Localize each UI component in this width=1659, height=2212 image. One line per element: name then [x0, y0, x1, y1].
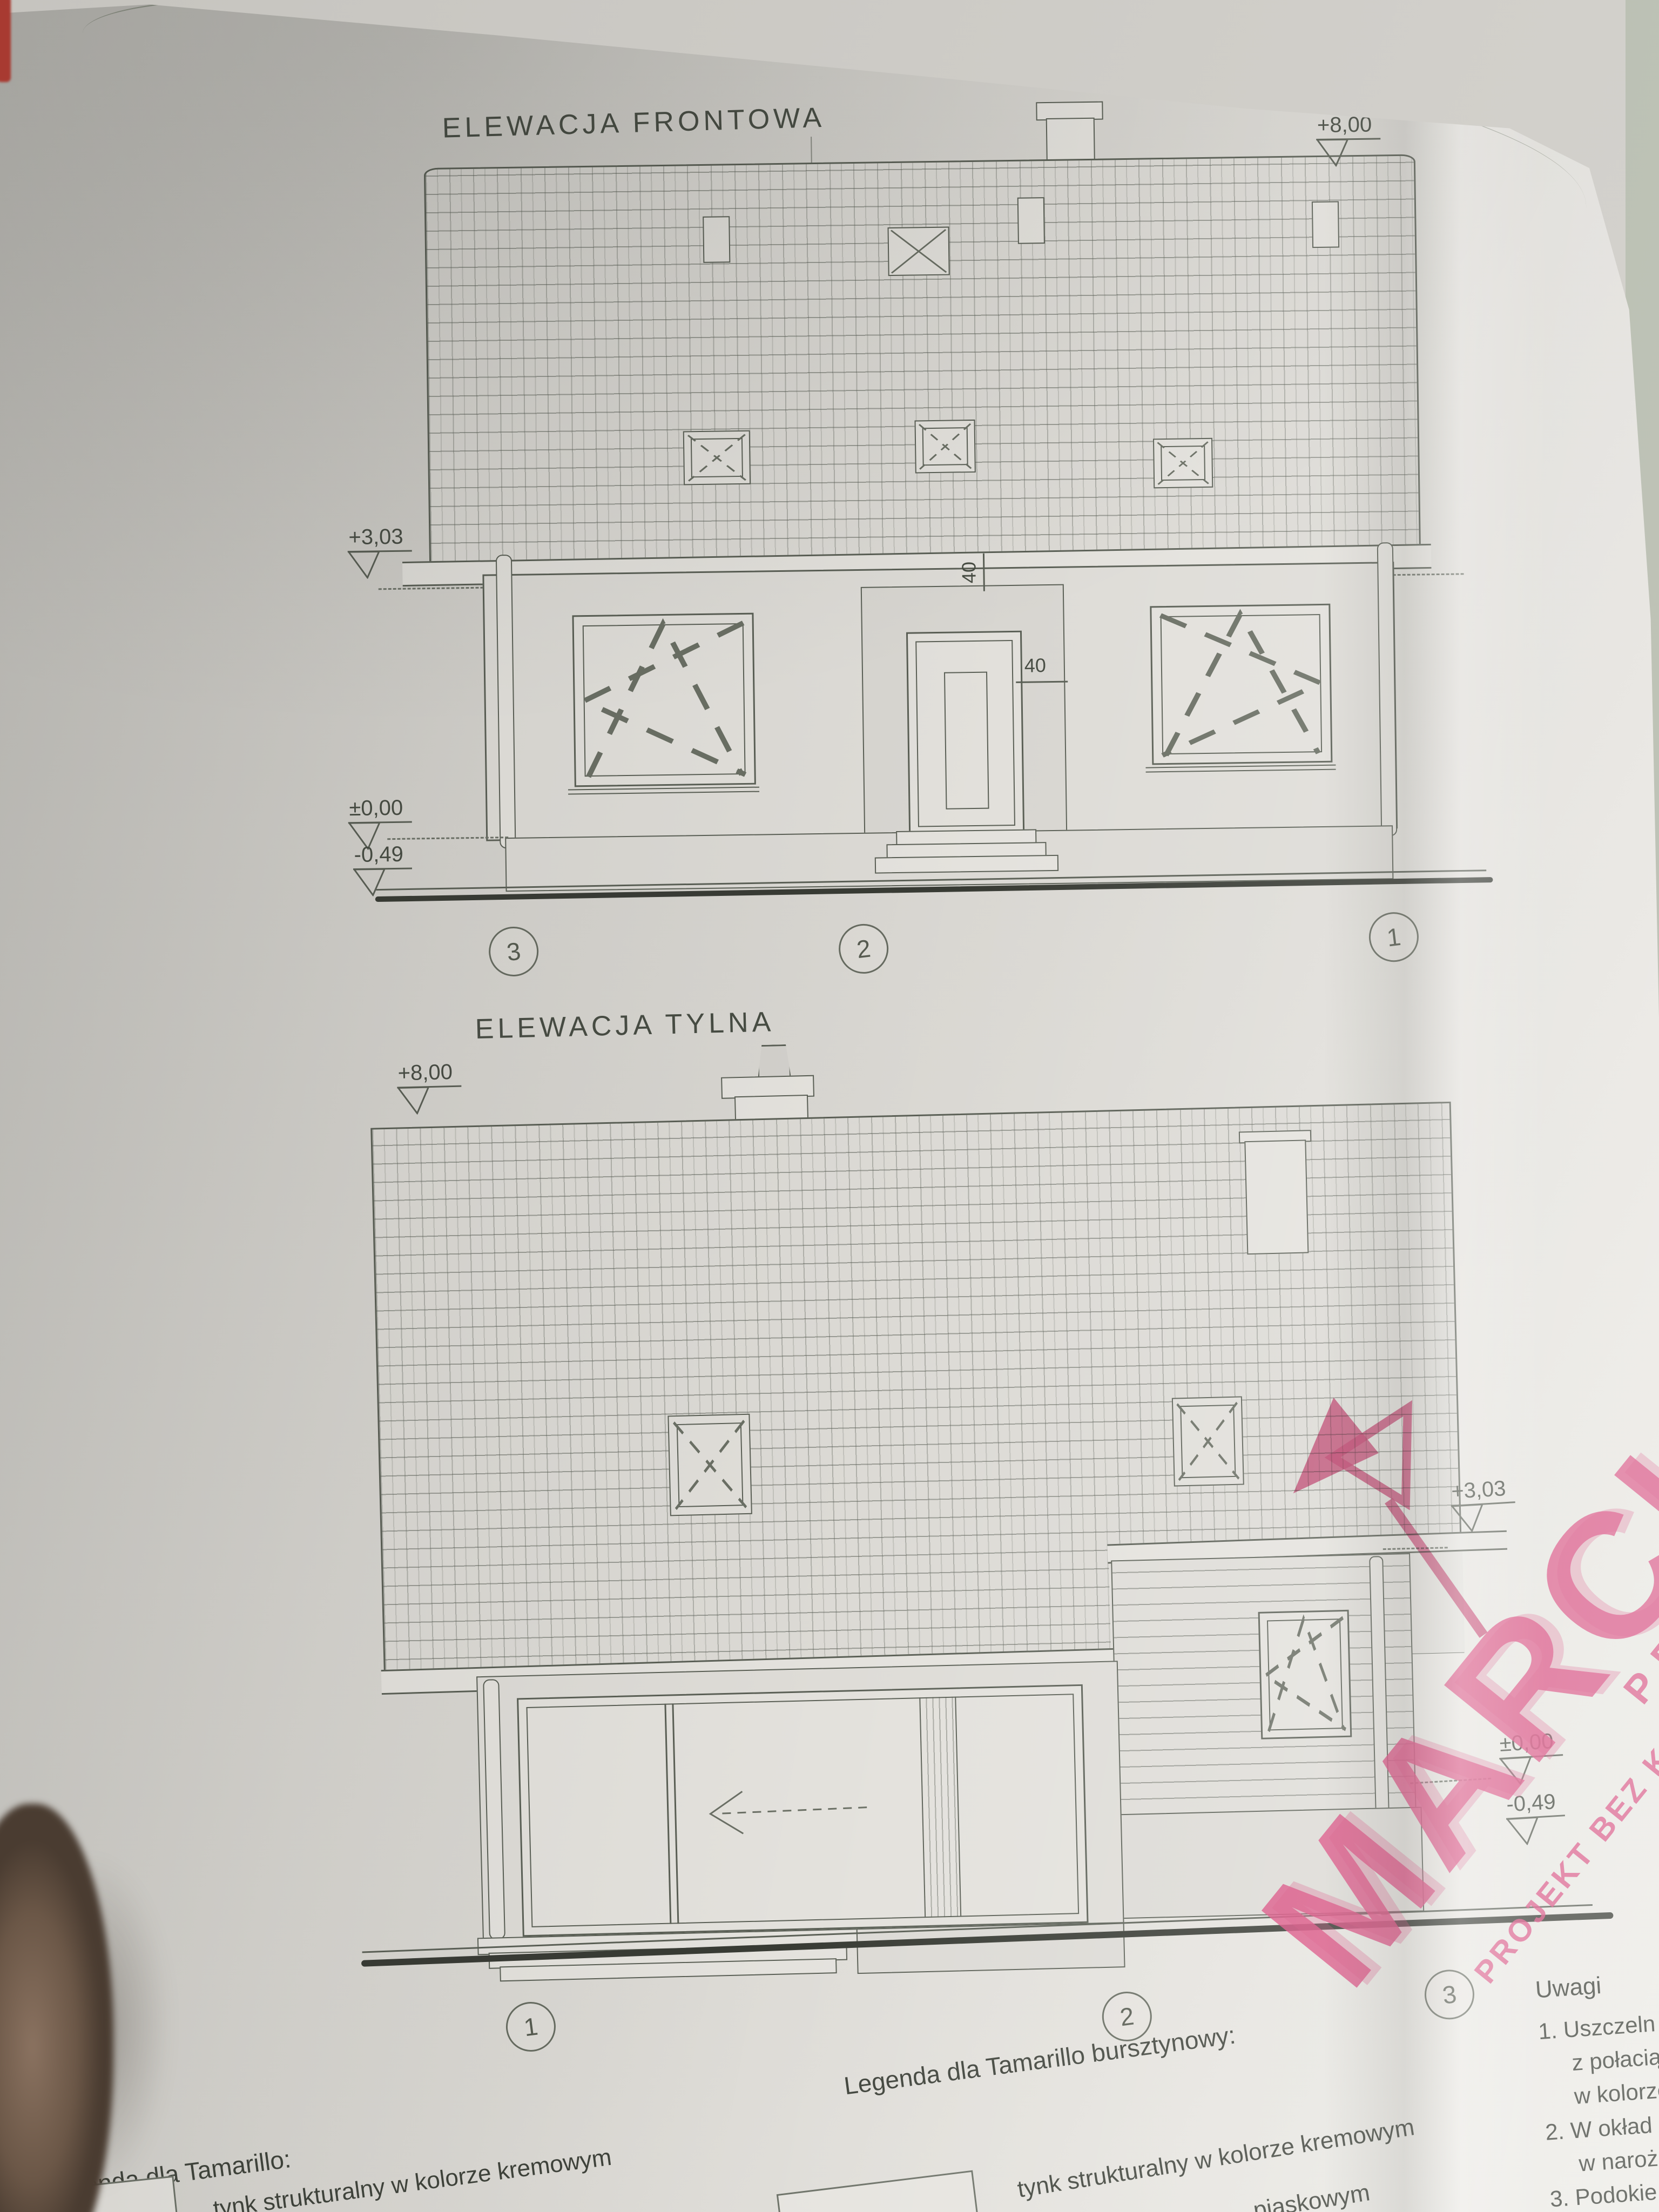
skylight-x-icon: [889, 228, 949, 275]
dim-value: 40: [957, 562, 981, 584]
sliding-door: [517, 1684, 1088, 1937]
window-opening-symbol: [684, 431, 750, 484]
level-triangle-icon: [348, 550, 381, 579]
front-elevation: ELEWACJA FRONTOWA: [318, 89, 1551, 1023]
dim-value: 40: [1024, 654, 1047, 677]
legend-right-swatch: [777, 2170, 989, 2212]
roof-vent-3: [1312, 201, 1339, 248]
dim-door-side: 40: [1016, 654, 1068, 683]
rear-roof-window-2: [1172, 1396, 1244, 1486]
roof-vent-1: [703, 216, 730, 263]
axis-bubble: 3: [486, 924, 541, 979]
front-door-frame: [906, 631, 1024, 837]
front-steps: [875, 855, 1058, 874]
front-window-right: [1150, 604, 1332, 765]
drawing-sheet: ELEWACJA FRONTOWA: [0, 0, 1659, 2212]
tilt-turn-symbol: [1151, 605, 1331, 764]
level-value: +8,00: [396, 1060, 461, 1089]
front-roof-window-3: [1153, 438, 1213, 489]
level-value: +3,03: [347, 525, 412, 553]
rear-chimney-flue: [757, 1044, 792, 1080]
axis-number: 1: [1385, 922, 1402, 953]
axis-bubble: 2: [836, 921, 891, 976]
axis-bubble: 1: [1366, 909, 1421, 965]
legend-right-item-partial: piaskowym: [1251, 2179, 1372, 2212]
axis-bubble: 1: [503, 1999, 558, 2054]
level-triangle-icon: [353, 868, 386, 896]
level-value: ±0,00: [348, 796, 412, 824]
roof-skylight: [887, 227, 949, 276]
rear-level-marker-ridge: +8,00: [396, 1060, 462, 1115]
front-level-marker-ridge: +8,00: [1316, 112, 1381, 167]
window-opening-symbol: [669, 1415, 751, 1515]
front-roof: [424, 154, 1421, 563]
window-opening-symbol: [916, 421, 975, 472]
axis-number: 3: [505, 936, 522, 967]
rear-roof-window-1: [667, 1414, 752, 1516]
front-level-marker-eaves: +3,03: [347, 525, 413, 579]
axis-number: 1: [522, 2012, 539, 2042]
front-roof-window-1: [683, 430, 751, 485]
axis-number: 2: [855, 934, 872, 965]
photo: ELEWACJA FRONTOWA: [0, 0, 1659, 2212]
front-window-left: [572, 613, 756, 787]
red-edge-object: [0, 0, 11, 82]
tilt-turn-symbol: [574, 615, 754, 786]
axis-number: 2: [1118, 2001, 1136, 2032]
window-opening-symbol: [1154, 439, 1212, 487]
level-value: -0,49: [353, 842, 412, 871]
rear-plinth: [857, 1922, 1125, 1974]
window-opening-symbol: [1173, 1398, 1243, 1486]
level-triangle-icon: [1316, 138, 1349, 167]
front-door-panel: [944, 672, 989, 810]
front-chimney: [1046, 118, 1095, 163]
level-triangle-icon: [397, 1086, 430, 1115]
front-elevation-title: ELEWACJA FRONTOWA: [442, 102, 826, 145]
front-roof-window-2: [914, 420, 975, 474]
rear-elevation-title: ELEWACJA TYLNA: [475, 1006, 775, 1046]
roof-vent-2: [1017, 197, 1045, 244]
rear-chimney2: [1244, 1139, 1309, 1255]
slide-direction-arrow: [518, 1686, 1087, 1935]
